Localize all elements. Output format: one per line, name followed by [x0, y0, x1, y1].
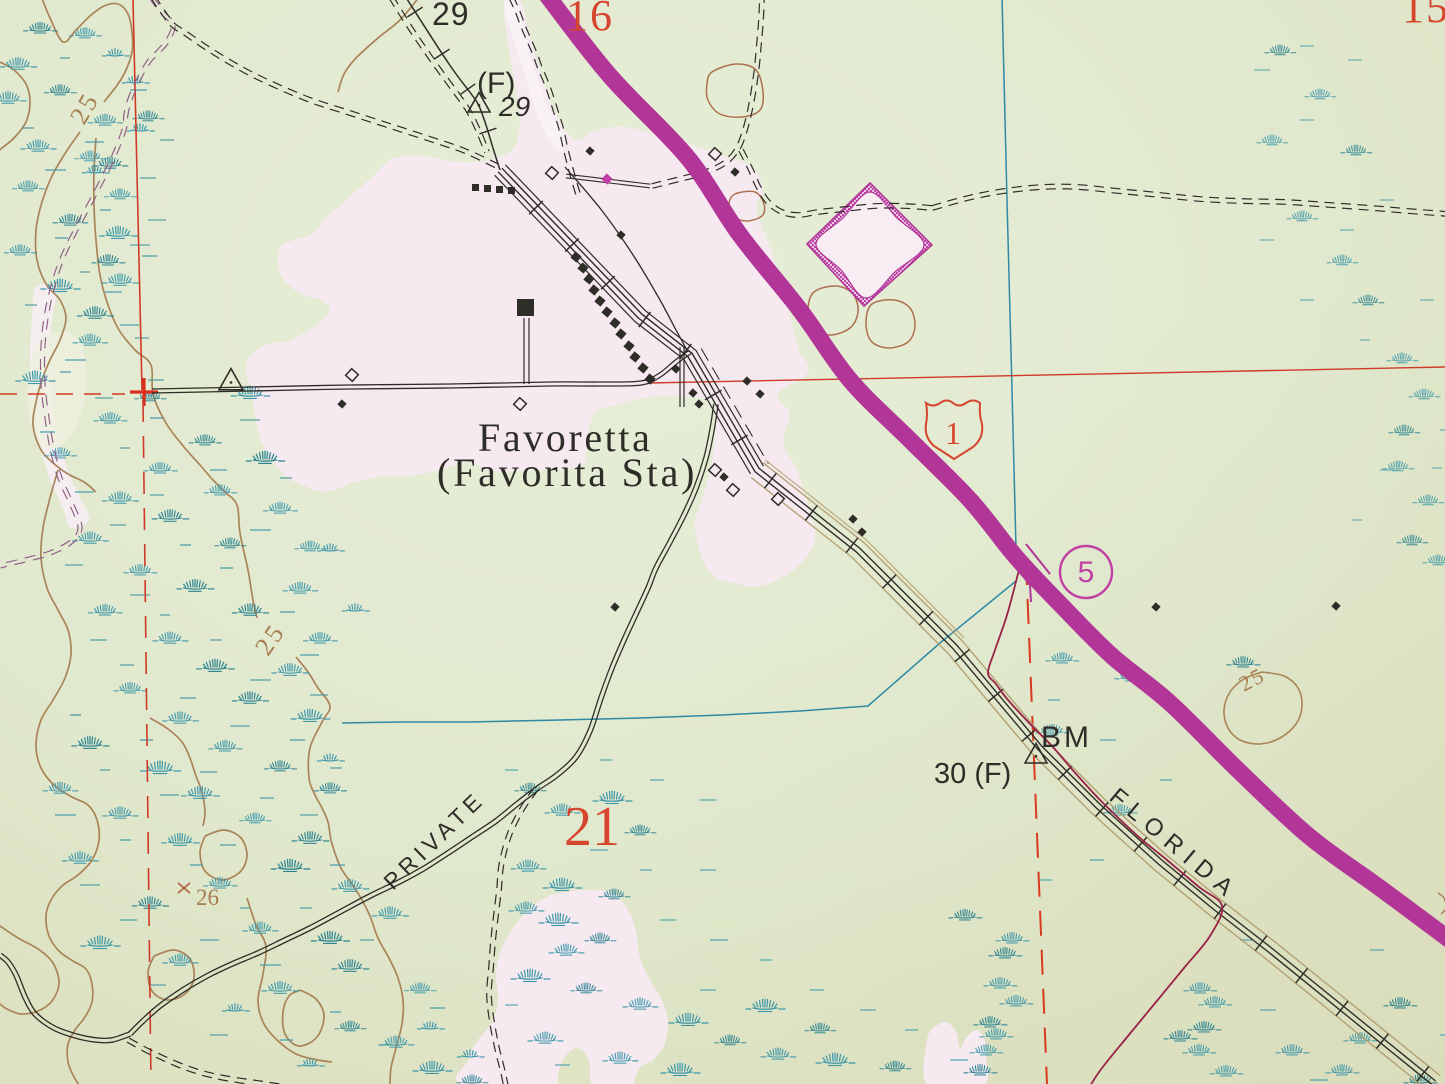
svg-text:16: 16	[566, 0, 614, 40]
svg-text:26: 26	[196, 885, 219, 910]
svg-text:15: 15	[1402, 0, 1445, 32]
svg-text:1: 1	[945, 415, 961, 451]
svg-text:21: 21	[564, 796, 620, 858]
svg-text:BM: BM	[1041, 721, 1092, 754]
svg-text:(Favorita Sta): (Favorita Sta)	[437, 450, 697, 495]
svg-text:29: 29	[432, 0, 470, 32]
svg-text:5: 5	[1078, 556, 1095, 589]
svg-text:29: 29	[498, 91, 530, 122]
svg-text:30 (F): 30 (F)	[934, 758, 1011, 790]
